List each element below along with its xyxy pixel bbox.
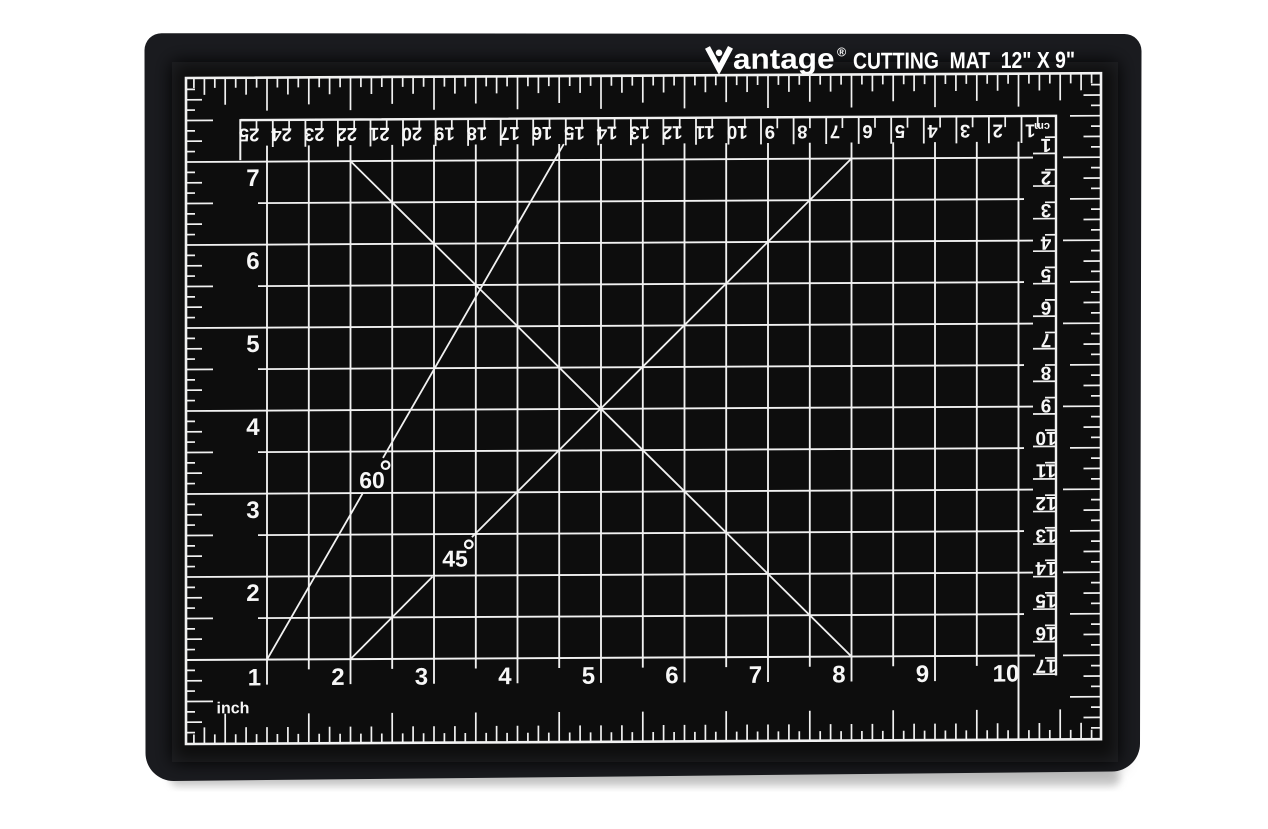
svg-text:8: 8 [832,661,845,688]
svg-text:3: 3 [960,121,970,142]
svg-text:4: 4 [498,663,512,690]
svg-text:12: 12 [662,122,683,143]
svg-text:5: 5 [246,331,259,358]
svg-text:®: ® [837,45,847,59]
svg-text:20: 20 [402,124,423,145]
svg-text:14: 14 [1035,557,1057,578]
svg-text:21: 21 [369,124,390,145]
svg-text:60: 60 [359,467,385,493]
svg-text:1: 1 [248,664,261,691]
svg-text:7: 7 [749,662,762,689]
svg-text:9: 9 [916,661,929,688]
svg-text:7: 7 [1041,329,1052,350]
svg-text:9: 9 [1041,394,1052,415]
svg-text:2: 2 [331,664,344,691]
svg-text:4: 4 [927,121,938,142]
svg-text:16: 16 [1035,622,1056,643]
svg-text:11: 11 [695,122,715,143]
svg-text:17: 17 [1035,655,1056,676]
svg-text:8: 8 [1041,362,1052,383]
svg-text:10: 10 [1035,427,1056,448]
svg-text:cm: cm [1034,120,1050,132]
svg-text:5: 5 [582,663,595,690]
svg-text:7: 7 [830,121,840,142]
svg-text:12: 12 [1035,492,1056,513]
svg-text:4: 4 [1040,232,1051,253]
svg-text:2: 2 [246,580,259,607]
svg-text:10: 10 [727,122,748,143]
svg-text:23: 23 [304,124,325,145]
svg-text:19: 19 [434,123,455,144]
svg-text:2: 2 [993,121,1003,142]
svg-text:6: 6 [246,248,259,275]
svg-text:15: 15 [1035,590,1057,611]
svg-text:4: 4 [246,414,260,441]
svg-text:5: 5 [895,121,905,142]
svg-text:24: 24 [271,124,292,145]
svg-text:25: 25 [239,125,260,146]
svg-text:10: 10 [993,660,1020,687]
svg-text:6: 6 [665,662,678,689]
svg-text:CUTTING MAT 12" X 9": CUTTING MAT 12" X 9" [853,47,1075,74]
svg-text:3: 3 [415,664,428,691]
svg-text:11: 11 [1036,459,1057,480]
svg-text:inch: inch [217,700,250,717]
svg-text:13: 13 [629,122,650,143]
svg-text:6: 6 [862,121,872,142]
svg-text:3: 3 [1041,199,1052,220]
svg-text:16: 16 [532,123,553,144]
svg-text:7: 7 [246,165,259,192]
svg-text:1: 1 [1040,134,1051,155]
svg-text:13: 13 [1035,524,1056,545]
svg-text:6: 6 [1041,297,1052,318]
svg-text:5: 5 [1040,264,1051,285]
svg-text:22: 22 [336,124,357,145]
svg-text:9: 9 [765,122,775,143]
svg-text:3: 3 [246,497,259,524]
svg-text:2: 2 [1041,166,1052,187]
svg-text:1: 1 [1025,120,1035,141]
svg-text:antage: antage [733,43,835,76]
svg-text:45: 45 [442,546,468,572]
svg-text:15: 15 [564,123,585,144]
svg-text:18: 18 [467,123,488,144]
svg-text:14: 14 [596,123,617,144]
svg-text:17: 17 [499,123,520,144]
svg-text:8: 8 [797,122,807,143]
